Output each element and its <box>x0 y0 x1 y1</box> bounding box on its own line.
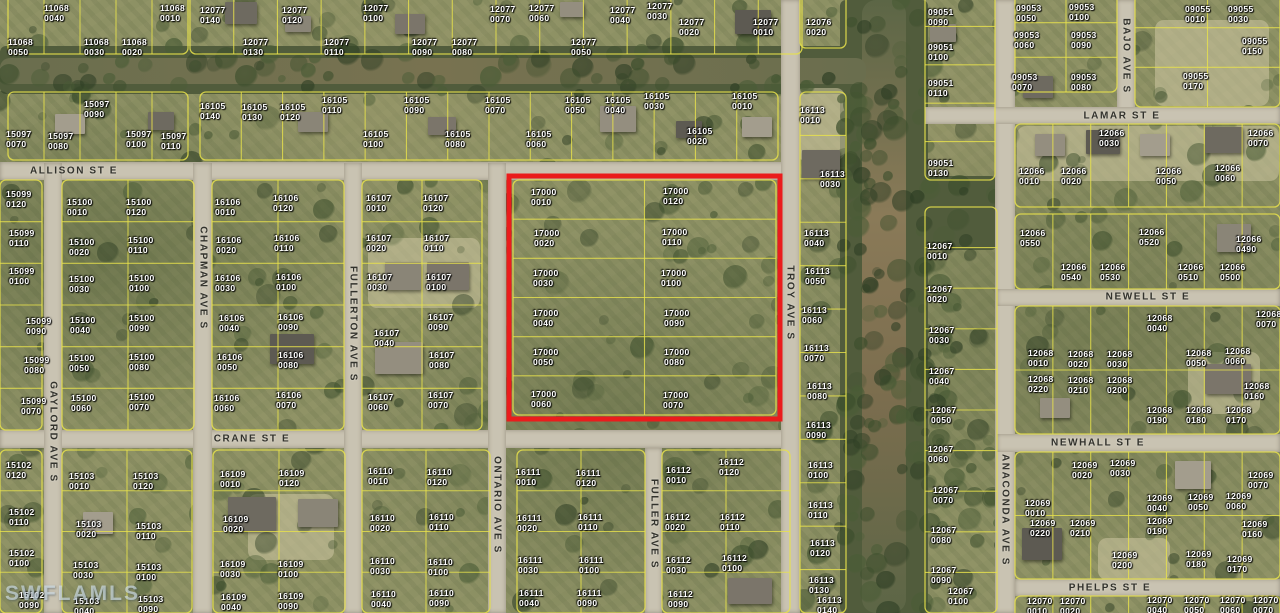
parcel-id-label: 15102 0110 <box>9 508 35 527</box>
parcel-id-label: 12077 0010 <box>753 18 779 37</box>
parcel-id-label: 12066 0520 <box>1139 228 1165 247</box>
street-name-label: CRANE ST E <box>214 434 291 445</box>
parcel-id-label: 16110 0120 <box>427 468 452 487</box>
parcel-id-label: 16105 0130 <box>242 103 268 122</box>
parcel-id-label: 12066 0010 <box>1019 167 1045 186</box>
parcel-id-label: 16112 0100 <box>722 554 747 573</box>
parcel-id-label: 12068 0160 <box>1244 382 1270 401</box>
street-name-label: BAJO AVE S <box>1121 18 1132 93</box>
parcel-id-label: 11068 0010 <box>160 4 185 23</box>
parcel-id-label: 16106 0100 <box>276 273 302 292</box>
parcel-id-label: 16105 0080 <box>445 130 471 149</box>
parcel-id-label: 16113 0060 <box>802 306 827 325</box>
parcel-id-label: 09055 0170 <box>1183 72 1209 91</box>
street-name-label: NEWELL ST E <box>1106 292 1191 303</box>
parcel-id-label: 12069 0220 <box>1030 519 1056 538</box>
parcel-id-label: 16105 0020 <box>687 127 713 146</box>
parcel-id-label: 12067 0090 <box>931 566 957 585</box>
parcel-id-label: 15099 0070 <box>21 397 47 416</box>
parcel-id-label: 09053 0100 <box>1069 3 1095 22</box>
parcel-id-label: 16113 0040 <box>804 229 829 248</box>
parcel-id-label: 12067 0070 <box>933 486 959 505</box>
parcel-id-label: 17000 0090 <box>664 309 690 328</box>
parcel-id-label: 12069 0010 <box>1025 499 1051 518</box>
parcel-id-label: 15097 0100 <box>126 130 152 149</box>
parcel-id-label: 16106 0110 <box>274 234 300 253</box>
parcel-id-label: 12069 0190 <box>1147 517 1173 536</box>
parcel-id-label: 12066 0530 <box>1100 263 1126 282</box>
parcel-id-label: 17000 0040 <box>533 309 559 328</box>
parcel-id-label: 12076 0020 <box>806 18 832 37</box>
parcel-id-label: 12070 0050 <box>1184 596 1210 613</box>
parcel-id-label: 16111 0040 <box>519 589 544 608</box>
street-name-label: FULLER AVE S <box>649 479 660 569</box>
parcel-id-label: 12077 0060 <box>529 4 555 23</box>
parcel-id-label: 15100 0090 <box>129 314 155 333</box>
parcel-id-label: 15103 0110 <box>136 522 162 541</box>
parcel-id-label: 12077 0070 <box>490 5 516 24</box>
parcel-id-label: 15102 0120 <box>6 461 32 480</box>
parcel-id-label: 16112 0010 <box>666 466 691 485</box>
parcel-id-label: 17000 0080 <box>664 348 690 367</box>
parcel-id-label: 12069 0200 <box>1112 551 1138 570</box>
parcel-id-label: 12069 0170 <box>1227 555 1253 574</box>
parcel-id-label: 15103 0010 <box>69 472 95 491</box>
parcel-id-label: 15100 0080 <box>129 353 155 372</box>
parcel-id-label: 16113 0010 <box>800 106 825 125</box>
street-name-label: ONTARIO AVE S <box>492 456 503 554</box>
parcel-id-label: 16109 0030 <box>220 560 246 579</box>
parcel-id-label: 15100 0070 <box>129 393 155 412</box>
parcel-id-label: 12067 0040 <box>929 367 955 386</box>
parcel-id-label: 12077 0120 <box>282 6 308 25</box>
parcel-id-label: 16106 0030 <box>215 274 241 293</box>
parcel-id-label: 16110 0110 <box>429 513 454 532</box>
parcel-id-label: 12069 0020 <box>1072 461 1098 480</box>
parcel-id-label: 16113 0130 <box>809 576 834 595</box>
parcel-id-label: 15102 0100 <box>9 549 35 568</box>
parcel-id-label: 16105 0140 <box>200 102 226 121</box>
parcel-id-label: 16110 0090 <box>429 589 454 608</box>
parcel-id-label: 16113 0110 <box>808 501 833 520</box>
parcel-id-label: 15099 0100 <box>9 267 35 286</box>
parcel-id-label: 16112 0120 <box>719 458 744 477</box>
parcel-id-label: 12066 0060 <box>1215 164 1241 183</box>
parcel-id-label: 16106 0010 <box>215 198 241 217</box>
parcel-id-label: 16111 0090 <box>577 589 602 608</box>
mls-watermark: SWFLAMLS <box>5 582 140 606</box>
parcel-id-label: 12068 0170 <box>1226 406 1252 425</box>
parcel-id-label: 15100 0120 <box>126 198 152 217</box>
parcel-id-label: 16107 0040 <box>374 329 400 348</box>
parcel-id-label: 16105 0070 <box>485 96 511 115</box>
parcel-id-label: 12077 0090 <box>412 38 438 57</box>
parcel-id-label: 12068 0070 <box>1256 310 1280 329</box>
parcel-id-label: 16109 0100 <box>278 560 304 579</box>
parcel-id-label: 17000 0110 <box>662 228 688 247</box>
parcel-id-label: 16110 0010 <box>368 467 393 486</box>
parcel-id-label: 12068 0220 <box>1028 375 1054 394</box>
parcel-id-label: 15100 0040 <box>70 316 96 335</box>
parcel-id-label: 11068 0020 <box>122 38 147 57</box>
parcel-id-label: 16107 0100 <box>426 273 452 292</box>
parcel-id-label: 15100 0010 <box>67 198 93 217</box>
parcel-id-label: 16106 0090 <box>278 313 304 332</box>
street-name-label: GAYLORD AVE S <box>48 381 59 483</box>
parcel-id-label: 15099 0110 <box>9 229 35 248</box>
parcel-id-label: 15103 0030 <box>73 561 99 580</box>
parcel-id-label: 12077 0020 <box>679 18 705 37</box>
parcel-id-label: 12069 0210 <box>1070 519 1096 538</box>
parcel-id-label: 17000 0060 <box>531 390 557 409</box>
parcel-id-label: 12067 0010 <box>927 242 953 261</box>
parcel-id-label: 09055 0030 <box>1228 5 1254 24</box>
parcel-id-label: 12068 0040 <box>1147 314 1173 333</box>
parcel-id-label: 12070 0060 <box>1220 596 1246 613</box>
parcel-id-label: 15103 0090 <box>138 595 164 613</box>
parcel-id-label: 12066 0030 <box>1099 129 1125 148</box>
parcel-id-label: 15100 0030 <box>69 275 95 294</box>
parcel-id-label: 16110 0040 <box>371 590 396 609</box>
parcel-id-label: 16105 0050 <box>565 96 591 115</box>
parcel-id-label: 12067 0030 <box>929 326 955 345</box>
parcel-id-label: 16107 0070 <box>428 391 454 410</box>
parcel-id-label: 12070 0040 <box>1147 596 1173 613</box>
parcel-id-label: 09051 0090 <box>928 8 954 27</box>
parcel-id-label: 15100 0050 <box>69 354 95 373</box>
parcel-id-label: 12068 0030 <box>1107 350 1133 369</box>
parcel-id-label: 16105 0110 <box>322 96 348 115</box>
parcel-id-label: 16106 0080 <box>278 351 304 370</box>
parcel-id-label: 11068 0040 <box>44 4 69 23</box>
parcel-id-label: 15097 0080 <box>48 132 74 151</box>
parcel-id-label: 12077 0140 <box>200 6 226 25</box>
parcel-id-label: 16111 0100 <box>579 556 604 575</box>
parcel-id-label: 16107 0060 <box>368 393 394 412</box>
parcel-id-label: 12066 0500 <box>1220 263 1246 282</box>
parcel-id-label: 12067 0050 <box>931 406 957 425</box>
parcel-id-label: 16109 0020 <box>223 515 249 534</box>
parcel-id-label: 16111 0110 <box>578 513 603 532</box>
parcel-id-label: 16105 0010 <box>732 92 758 111</box>
parcel-id-label: 16113 0030 <box>820 170 845 189</box>
parcel-id-label: 16109 0090 <box>278 592 304 611</box>
parcel-id-label: 12068 0180 <box>1186 406 1212 425</box>
parcel-id-label: 15100 0110 <box>128 236 154 255</box>
parcel-id-label: 12077 0040 <box>610 6 636 25</box>
parcel-id-label: 15099 0120 <box>6 190 32 209</box>
parcel-id-label: 16111 0030 <box>518 556 543 575</box>
parcel-id-label: 15103 0020 <box>76 520 102 539</box>
parcel-id-label: 12067 0060 <box>928 445 954 464</box>
parcel-id-label: 16106 0050 <box>217 353 243 372</box>
parcel-id-label: 12066 0490 <box>1236 235 1262 254</box>
parcel-id-label: 16109 0120 <box>279 469 305 488</box>
parcel-id-label: 12069 0060 <box>1226 492 1252 511</box>
parcel-id-label: 12069 0070 <box>1248 471 1274 490</box>
street-name-label: TROY AVE S <box>785 265 796 340</box>
parcel-id-label: 12070 0070 <box>1253 596 1279 613</box>
parcel-id-label: 17000 0100 <box>661 269 687 288</box>
parcel-id-label: 16113 0080 <box>807 382 832 401</box>
street-name-label: ALLISON ST E <box>30 166 118 177</box>
parcel-id-label: 09053 0050 <box>1016 4 1042 23</box>
street-name-label: PHELPS ST E <box>1069 583 1152 594</box>
parcel-id-label: 12068 0190 <box>1147 406 1173 425</box>
parcel-id-label: 09053 0080 <box>1071 73 1097 92</box>
parcel-id-label: 12070 0010 <box>1027 597 1053 613</box>
parcel-id-label: 12077 0110 <box>324 38 350 57</box>
parcel-id-label: 16109 0010 <box>220 470 246 489</box>
parcel-id-label: 11068 0030 <box>84 38 109 57</box>
parcel-id-label: 12068 0010 <box>1028 349 1054 368</box>
parcel-id-label: 12077 0050 <box>571 38 597 57</box>
parcel-id-label: 16105 0030 <box>644 92 670 111</box>
parcel-id-label: 12069 0050 <box>1188 493 1214 512</box>
parcel-id-label: 15097 0090 <box>84 100 110 119</box>
parcel-id-label: 12066 0070 <box>1248 129 1274 148</box>
parcel-id-label: 12066 0550 <box>1020 229 1046 248</box>
parcel-id-label: 16106 0070 <box>276 391 302 410</box>
parcel-id-label: 16113 0140 <box>817 596 842 613</box>
parcel-id-label: 16105 0090 <box>404 96 430 115</box>
parcel-id-label: 12068 0050 <box>1186 349 1212 368</box>
parcel-id-label: 17000 0030 <box>533 269 559 288</box>
parcel-id-label: 09053 0070 <box>1012 73 1038 92</box>
street-name-label: LAMAR ST E <box>1083 111 1160 122</box>
parcel-id-label: 15100 0020 <box>69 238 95 257</box>
parcel-id-label: 12069 0180 <box>1186 550 1212 569</box>
parcel-id-label: 17000 0050 <box>533 348 559 367</box>
parcel-id-label: 12066 0510 <box>1178 263 1204 282</box>
parcel-id-label: 16112 0090 <box>668 590 693 609</box>
parcel-id-label: 12067 0080 <box>931 526 957 545</box>
parcel-id-label: 16106 0020 <box>216 236 242 255</box>
parcel-id-label: 17000 0070 <box>663 391 689 410</box>
parcel-id-label: 16113 0120 <box>810 539 835 558</box>
parcel-id-label: 12077 0080 <box>452 38 478 57</box>
parcel-id-label: 12066 0020 <box>1061 167 1087 186</box>
parcel-id-label: 16106 0120 <box>273 194 299 213</box>
parcel-id-label: 15103 0120 <box>133 472 159 491</box>
parcel-id-label: 11068 0050 <box>8 38 33 57</box>
parcel-id-label: 16107 0020 <box>366 234 392 253</box>
parcel-id-label: 16112 0020 <box>665 513 690 532</box>
parcel-id-label: 16112 0030 <box>666 556 691 575</box>
parcel-id-label: 16113 0050 <box>805 267 830 286</box>
parcel-id-label: 12077 0130 <box>243 38 269 57</box>
street-name-label: FULLERTON AVE S <box>348 266 359 382</box>
parcel-id-label: 17000 0010 <box>531 188 557 207</box>
parcel-id-label: 09055 0150 <box>1242 37 1268 56</box>
parcel-id-label: 16106 0040 <box>219 314 245 333</box>
parcel-id-label: 16105 0120 <box>280 103 306 122</box>
parcel-id-label: 12070 0020 <box>1060 597 1086 613</box>
parcel-id-label: 16107 0090 <box>428 313 454 332</box>
parcel-id-label: 09051 0100 <box>928 43 954 62</box>
parcel-id-label: 09055 0010 <box>1185 5 1211 24</box>
parcel-id-label: 17000 0020 <box>534 229 560 248</box>
parcel-id-label: 16113 0090 <box>806 421 831 440</box>
parcel-id-label: 15099 0080 <box>24 356 50 375</box>
parcel-id-label: 15103 0100 <box>136 563 162 582</box>
parcel-id-label: 15097 0070 <box>6 130 32 149</box>
parcel-id-label: 16111 0120 <box>576 469 601 488</box>
parcel-id-label: 12066 0540 <box>1061 263 1087 282</box>
parcel-id-label: 16107 0120 <box>423 194 449 213</box>
parcel-id-label: 12067 0100 <box>948 587 974 606</box>
parcel-id-label: 16107 0110 <box>424 234 450 253</box>
parcel-id-label: 12069 0040 <box>1147 494 1173 513</box>
parcel-id-label: 15099 0090 <box>26 317 52 336</box>
parcel-id-label: 12067 0020 <box>927 285 953 304</box>
parcel-id-label: 16107 0010 <box>366 194 392 213</box>
street-name-label: NEWHALL ST E <box>1051 438 1145 449</box>
parcel-id-label: 16109 0040 <box>221 593 247 612</box>
parcel-id-label: 09051 0110 <box>928 79 954 98</box>
parcel-id-label: 17000 0120 <box>663 187 689 206</box>
parcel-id-label: 16110 0100 <box>428 558 453 577</box>
parcel-id-label: 16112 0110 <box>720 513 745 532</box>
parcel-id-label: 16111 0010 <box>516 468 541 487</box>
parcel-id-label: 15100 0060 <box>71 394 97 413</box>
parcel-id-label: 09053 0060 <box>1014 31 1040 50</box>
parcel-id-label: 12066 0050 <box>1156 167 1182 186</box>
parcel-id-label: 12069 0160 <box>1242 520 1268 539</box>
parcel-id-label: 12068 0200 <box>1107 376 1133 395</box>
parcel-id-label: 09053 0090 <box>1071 31 1097 50</box>
parcel-id-label: 12068 0210 <box>1068 376 1094 395</box>
parcel-id-label: 16113 0100 <box>808 461 833 480</box>
parcel-id-label: 16111 0020 <box>517 514 542 533</box>
parcel-id-label: 16107 0030 <box>367 273 393 292</box>
parcel-id-label: 12077 0100 <box>363 4 389 23</box>
parcel-id-label: 12069 0030 <box>1110 459 1136 478</box>
parcel-id-label: 12068 0060 <box>1225 347 1251 366</box>
street-name-label: CHAPMAN AVE S <box>198 226 209 330</box>
street-name-label: ANACONDA AVE S <box>1000 454 1011 566</box>
aerial-parcel-map: 11068 004011068 005011068 003011068 0020… <box>0 0 1280 613</box>
parcel-id-label: 16110 0030 <box>370 557 395 576</box>
parcel-id-label: 15097 0110 <box>161 132 187 151</box>
parcel-id-label: 09051 0130 <box>928 159 954 178</box>
parcel-id-label: 16105 0060 <box>526 130 552 149</box>
parcel-id-label: 16110 0020 <box>370 514 395 533</box>
parcel-id-label: 12068 0020 <box>1068 350 1094 369</box>
parcel-id-label: 16105 0040 <box>605 96 631 115</box>
parcel-id-label: 15100 0100 <box>129 274 155 293</box>
parcel-id-label: 12077 0030 <box>647 2 673 21</box>
parcel-id-label: 16113 0070 <box>804 344 829 363</box>
parcel-id-label: 16106 0060 <box>214 394 240 413</box>
parcel-id-label: 16105 0100 <box>363 130 389 149</box>
parcel-id-label: 16107 0080 <box>429 351 455 370</box>
